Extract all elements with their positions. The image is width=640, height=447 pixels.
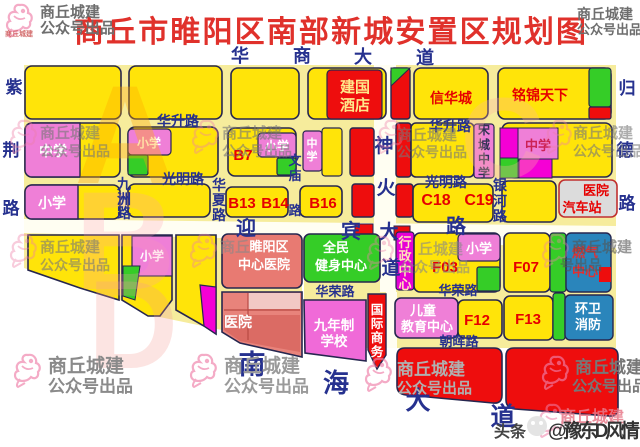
svg-text:银: 银 — [493, 177, 508, 193]
svg-text:路: 路 — [212, 207, 227, 223]
svg-text:建国: 建国 — [340, 78, 370, 96]
svg-text:商丘城建: 商丘城建 — [573, 124, 634, 142]
svg-text:消防: 消防 — [575, 317, 601, 332]
svg-text:公众号出品: 公众号出品 — [40, 257, 110, 273]
svg-text:心: 心 — [398, 277, 411, 292]
svg-text:火: 火 — [376, 177, 396, 199]
svg-text:小学: 小学 — [38, 195, 66, 211]
svg-text:F07: F07 — [513, 259, 539, 276]
svg-text:商丘城建: 商丘城建 — [40, 124, 101, 142]
svg-text:华荣路: 华荣路 — [315, 284, 355, 299]
svg-text:商丘城建: 商丘城建 — [397, 126, 458, 144]
svg-text:公众号出品: 公众号出品 — [572, 377, 640, 395]
svg-text:汽车站: 汽车站 — [562, 200, 601, 215]
svg-text:商丘城建: 商丘城建 — [5, 29, 34, 38]
svg-text:华升路: 华升路 — [157, 113, 200, 129]
svg-text:教育中心: 教育中心 — [400, 319, 453, 334]
svg-text:九: 九 — [116, 176, 131, 192]
svg-text:华荣路: 华荣路 — [438, 283, 478, 298]
svg-text:B14: B14 — [261, 195, 289, 212]
svg-text:际: 际 — [371, 317, 384, 331]
svg-text:朝晖路: 朝晖路 — [439, 334, 479, 349]
svg-text:C18: C18 — [421, 192, 450, 209]
svg-text:酒店: 酒店 — [340, 96, 370, 114]
svg-text:商丘: 商丘 — [220, 238, 250, 256]
svg-text:紫: 紫 — [6, 77, 23, 97]
svg-text:学: 学 — [307, 149, 318, 163]
svg-text:商丘城建: 商丘城建 — [40, 238, 101, 256]
svg-text:商: 商 — [371, 330, 384, 345]
svg-text:光明路: 光明路 — [424, 174, 468, 190]
svg-text:行: 行 — [397, 235, 411, 250]
svg-text:路: 路 — [493, 208, 508, 224]
svg-text:路: 路 — [117, 205, 132, 221]
svg-text:医院: 医院 — [224, 314, 252, 330]
svg-text:归: 归 — [619, 78, 636, 98]
svg-text:商丘城建: 商丘城建 — [48, 354, 124, 377]
svg-text:公众号出品: 公众号出品 — [222, 143, 292, 159]
svg-text:儿童: 儿童 — [409, 303, 436, 318]
svg-text:华: 华 — [212, 177, 226, 193]
svg-text:华: 华 — [231, 45, 249, 66]
svg-text:迎: 迎 — [236, 216, 256, 240]
svg-text:头条: 头条 — [494, 422, 527, 441]
svg-text:B13: B13 — [228, 195, 256, 212]
svg-text:小学: 小学 — [466, 241, 492, 256]
svg-text:九年制: 九年制 — [313, 317, 355, 333]
svg-text:B16: B16 — [309, 195, 337, 212]
svg-text:环卫: 环卫 — [575, 301, 601, 316]
svg-text:F12: F12 — [464, 312, 490, 329]
svg-text:号出品: 号出品 — [560, 257, 602, 273]
svg-text:务: 务 — [371, 344, 384, 359]
svg-text:路: 路 — [3, 198, 21, 218]
svg-text:@豫东D风情: @豫东D风情 — [548, 419, 640, 442]
svg-text:路: 路 — [619, 193, 637, 213]
svg-text:大: 大 — [354, 46, 372, 67]
svg-text:商丘城建: 商丘城建 — [397, 359, 465, 379]
svg-text:商丘城建: 商丘城建 — [572, 238, 633, 256]
svg-text:商丘城建: 商丘城建 — [575, 357, 640, 377]
svg-text:国: 国 — [371, 303, 384, 317]
svg-text:商丘城建: 商丘城建 — [577, 6, 633, 22]
svg-text:宾: 宾 — [341, 219, 361, 243]
svg-text:医院: 医院 — [583, 183, 609, 198]
svg-text:路: 路 — [446, 214, 467, 238]
svg-text:F13: F13 — [515, 311, 541, 328]
svg-text:公众号出品: 公众号出品 — [48, 376, 133, 396]
svg-text:公众号出品: 公众号出品 — [400, 259, 470, 275]
svg-text:中心医院: 中心医院 — [238, 257, 290, 272]
svg-text:公众号出品: 公众号出品 — [40, 143, 110, 159]
svg-text:公众号出品: 公众号出品 — [224, 376, 309, 396]
svg-text:公众号出品: 公众号出品 — [577, 22, 640, 37]
svg-text:学校: 学校 — [321, 333, 348, 349]
svg-text:公众号出品: 公众号出品 — [397, 144, 467, 160]
svg-text:公众号出品: 公众号出品 — [573, 143, 640, 159]
svg-text:庙: 庙 — [288, 168, 301, 183]
svg-text:公众号出品: 公众号出品 — [40, 19, 115, 37]
svg-text:光明路: 光明路 — [161, 171, 205, 187]
svg-text:商丘城建: 商丘城建 — [222, 124, 283, 142]
svg-text:商丘城建: 商丘城建 — [224, 354, 300, 377]
svg-text:中: 中 — [307, 136, 318, 150]
svg-text:道: 道 — [416, 47, 434, 68]
svg-text:夏: 夏 — [212, 192, 227, 208]
svg-text:丘城建: 丘城建 — [418, 240, 464, 258]
svg-text:商: 商 — [293, 45, 311, 66]
svg-text:公众号出品: 公众号出品 — [397, 379, 472, 397]
svg-text:睢阳区: 睢阳区 — [249, 239, 288, 254]
svg-text:河: 河 — [493, 193, 507, 209]
svg-text:健身中心: 健身中心 — [315, 258, 367, 273]
svg-text:海: 海 — [323, 368, 349, 398]
svg-text:商丘城建: 商丘城建 — [40, 3, 101, 21]
svg-text:路: 路 — [288, 203, 302, 218]
